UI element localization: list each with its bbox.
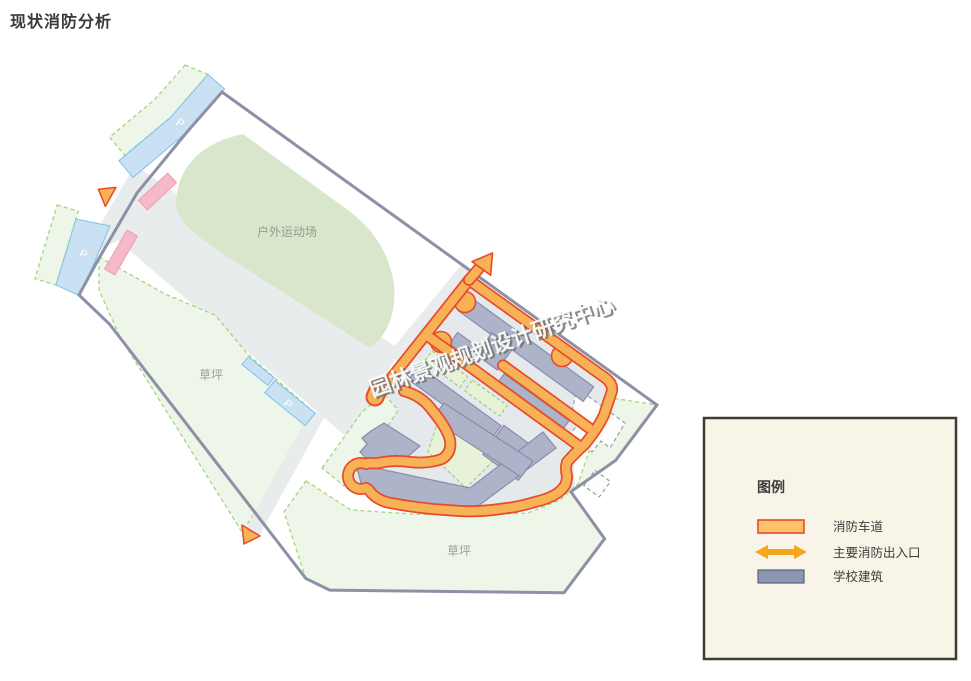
svg-text:草坪: 草坪	[447, 544, 471, 558]
svg-text:户外运动场: 户外运动场	[257, 224, 317, 239]
svg-text:消防车道: 消防车道	[833, 519, 884, 534]
svg-text:草坪: 草坪	[199, 368, 223, 382]
svg-text:学校建筑: 学校建筑	[833, 569, 884, 584]
svg-text:主要消防出入口: 主要消防出入口	[833, 545, 921, 560]
svg-text:图例: 图例	[757, 479, 785, 495]
